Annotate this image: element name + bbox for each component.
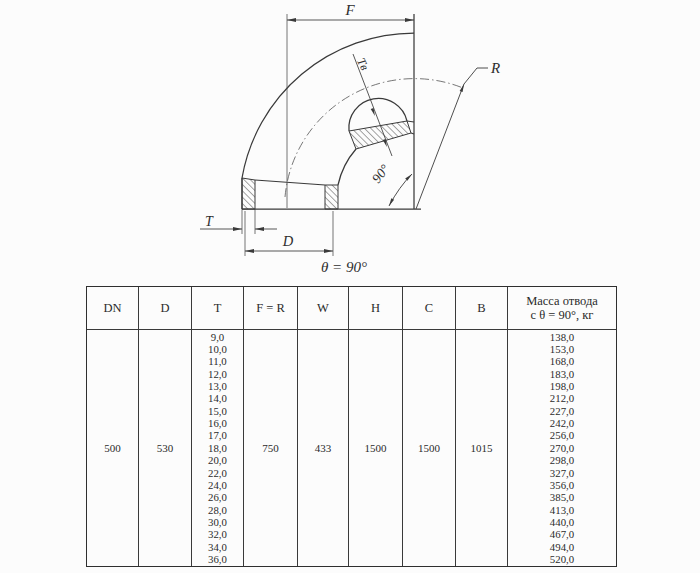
table-value: 15,0 — [208, 405, 227, 417]
table-value: 20,0 — [208, 454, 227, 466]
cell-c: 1500 — [403, 330, 455, 566]
table-value: 22,0 — [208, 467, 227, 479]
elbow-drawing: F R Tв 90° — [0, 0, 700, 285]
right-wall-section — [325, 185, 338, 209]
dim-label-r: R — [490, 60, 500, 76]
table-value: 14,0 — [208, 392, 227, 404]
table-value: 183,0 — [550, 368, 574, 380]
cell-d: 530 — [139, 330, 191, 566]
elbow-body-outline — [242, 14, 421, 209]
table-value: 212,0 — [550, 392, 574, 404]
table-value: 32,0 — [208, 528, 227, 540]
table-value: 227,0 — [550, 405, 574, 417]
table-value: 440,0 — [550, 516, 574, 528]
table-value: 24,0 — [208, 479, 227, 491]
arrowhead — [233, 227, 242, 231]
mass-header-line2: с θ = 90°, кг — [531, 308, 594, 322]
table-value: 242,0 — [550, 417, 574, 429]
cell-h: 1500 — [349, 330, 402, 566]
table-header-f-r: F = R — [244, 287, 297, 330]
theta-caption: θ = 90° — [321, 259, 367, 275]
table-value: 11,0 — [208, 355, 227, 367]
dim-label-t-inner: Tв — [354, 56, 372, 73]
table-value: 168,0 — [550, 355, 574, 367]
table-value: 494,0 — [550, 541, 574, 553]
table-value: 298,0 — [550, 454, 574, 466]
dim-d: D — [245, 211, 333, 256]
upper-edge-tick-1 — [407, 121, 414, 122]
dim-label-t: T — [205, 214, 214, 229]
table-value: 13,0 — [208, 380, 227, 392]
table-header-t: T — [192, 287, 243, 330]
table-value: 34,0 — [208, 541, 227, 553]
table-header-d: D — [139, 287, 191, 330]
table-header-h: H — [349, 287, 402, 330]
column-w: W 433 — [298, 287, 349, 566]
table-value: 30,0 — [208, 516, 227, 528]
table-value: 12,0 — [208, 368, 227, 380]
table-value: 36,0 — [208, 553, 227, 565]
dimension-table: DN 500 D 530 T 9,010,011,012,013,014,015… — [86, 286, 617, 567]
column-c: C 1500 — [403, 287, 456, 566]
arrowhead — [255, 227, 264, 231]
page: F R Tв 90° — [0, 0, 700, 573]
table-header-c: C — [403, 287, 455, 330]
outer-arc — [242, 33, 414, 178]
table-header-dn: DN — [87, 287, 138, 330]
arrowhead — [324, 249, 333, 253]
angle-label: 90° — [369, 161, 393, 186]
cell-dn: 500 — [87, 330, 138, 566]
table-value: 153,0 — [550, 343, 574, 355]
cell-b: 1015 — [456, 330, 507, 566]
mass-header-line1: Масса отвода — [526, 294, 598, 308]
table-value: 256,0 — [550, 429, 574, 441]
column-t: T 9,010,011,012,013,014,015,016,017,018,… — [192, 287, 244, 566]
column-mass: Масса отвода с θ = 90°, кг 138,0153,0168… — [508, 287, 616, 566]
column-f-r: F = R 750 — [244, 287, 298, 566]
column-b: B 1015 — [456, 287, 508, 566]
table-header-mass: Масса отвода с θ = 90°, кг — [508, 287, 616, 330]
cell-mass-list: 138,0153,0168,0183,0198,0212,0227,0242,0… — [508, 330, 616, 566]
dim-label-d: D — [282, 233, 294, 249]
dim-label-f: F — [344, 2, 355, 18]
table-header-w: W — [298, 287, 348, 330]
table-header-b: B — [456, 287, 507, 330]
table-value: 356,0 — [550, 479, 574, 491]
table-value: 467,0 — [550, 528, 574, 540]
inner-arc — [338, 149, 356, 185]
arrowhead — [389, 198, 394, 206]
left-wall-section — [242, 178, 255, 209]
table-value: 18,0 — [208, 442, 227, 454]
cell-f-r: 750 — [244, 330, 297, 566]
arrowhead — [287, 18, 296, 22]
column-h: H 1500 — [349, 287, 403, 566]
table-value: 10,0 — [208, 343, 227, 355]
column-dn: DN 500 — [87, 287, 139, 566]
arrowhead — [245, 249, 254, 253]
table-value: 270,0 — [550, 442, 574, 454]
table-value: 520,0 — [550, 553, 574, 565]
dim-f: F — [287, 2, 414, 22]
table-value: 198,0 — [550, 380, 574, 392]
table-value: 28,0 — [208, 504, 227, 516]
table-value: 413,0 — [550, 504, 574, 516]
table-value: 17,0 — [208, 429, 227, 441]
dim-angle: 90° — [369, 161, 412, 206]
table-value: 9,0 — [211, 331, 225, 343]
dim-t: T — [200, 209, 277, 234]
table-value: 327,0 — [550, 467, 574, 479]
arrowhead — [460, 84, 464, 92]
table-value: 138,0 — [550, 331, 574, 343]
table-value: 385,0 — [550, 491, 574, 503]
table-value: 16,0 — [208, 417, 227, 429]
arrowhead — [405, 18, 414, 22]
table-value: 26,0 — [208, 491, 227, 503]
wall-sections — [242, 121, 411, 209]
column-d: D 530 — [139, 287, 192, 566]
cell-w: 433 — [298, 330, 348, 566]
dim-r: R — [416, 60, 500, 209]
bottom-bore-edge — [255, 180, 325, 185]
cell-t-list: 9,010,011,012,013,014,015,016,017,018,02… — [192, 330, 243, 566]
